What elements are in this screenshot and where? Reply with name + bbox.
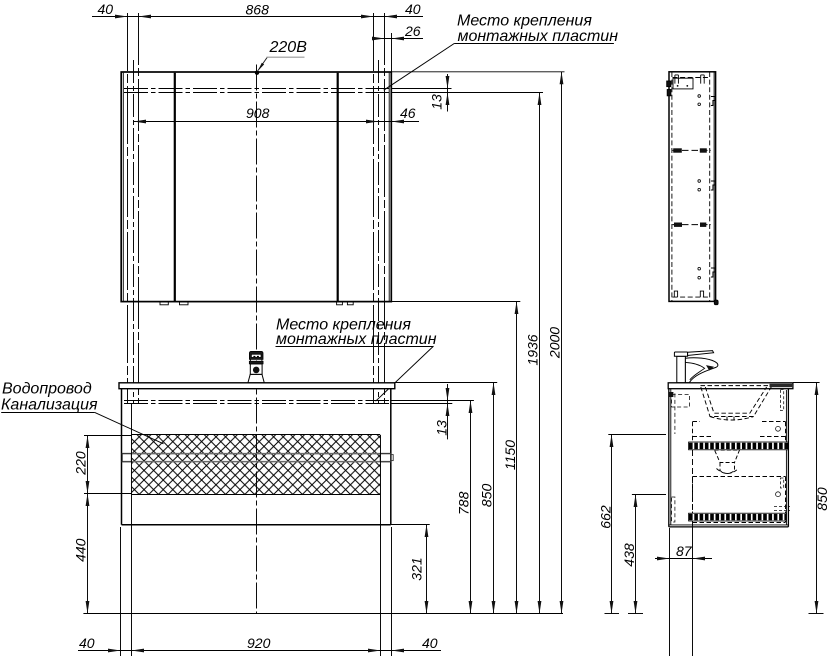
svg-text:220В: 220В xyxy=(269,39,308,56)
svg-text:Водопровод: Водопровод xyxy=(2,381,92,398)
svg-text:40: 40 xyxy=(422,635,438,651)
svg-text:40: 40 xyxy=(405,1,421,17)
svg-text:40: 40 xyxy=(98,1,114,17)
svg-text:440: 440 xyxy=(73,538,89,562)
svg-text:662: 662 xyxy=(598,505,614,529)
svg-text:220: 220 xyxy=(73,451,89,476)
svg-text:788: 788 xyxy=(456,491,472,515)
svg-text:850: 850 xyxy=(479,484,495,508)
svg-text:46: 46 xyxy=(400,105,416,121)
svg-text:321: 321 xyxy=(409,557,425,580)
svg-text:26: 26 xyxy=(404,23,421,39)
svg-text:монтажных пластин: монтажных пластин xyxy=(276,331,437,348)
svg-text:монтажных пластин: монтажных пластин xyxy=(458,28,619,45)
svg-text:13: 13 xyxy=(434,420,450,436)
svg-text:1150: 1150 xyxy=(502,440,518,470)
svg-text:438: 438 xyxy=(621,543,637,567)
svg-text:868: 868 xyxy=(246,1,270,17)
svg-text:920: 920 xyxy=(247,635,271,651)
svg-text:Канализация: Канализация xyxy=(1,396,98,413)
svg-text:908: 908 xyxy=(246,105,270,121)
svg-text:13: 13 xyxy=(429,94,445,110)
svg-text:2000: 2000 xyxy=(547,327,563,359)
svg-text:40: 40 xyxy=(79,635,95,651)
svg-text:850: 850 xyxy=(814,487,830,511)
svg-text:87: 87 xyxy=(676,543,693,559)
svg-text:1936: 1936 xyxy=(525,334,541,365)
